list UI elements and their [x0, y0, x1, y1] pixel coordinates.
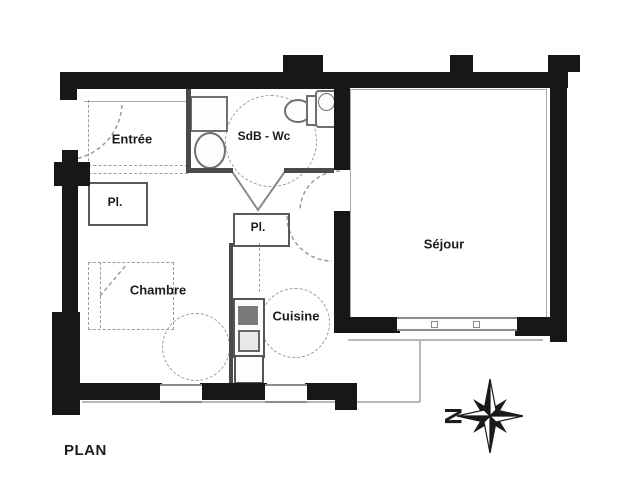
room-label-closet-2: Pl.: [251, 220, 266, 234]
entree-door-faceline: [88, 100, 89, 166]
washbasin: [194, 132, 226, 169]
chambre-window-2: [265, 384, 307, 403]
wall-sejour-bottom-right: [515, 317, 567, 336]
kitchen-sink: [234, 355, 264, 384]
room-label-closet-1: Pl.: [108, 195, 123, 209]
wall-top-right: [340, 72, 568, 88]
bed-divider: [100, 262, 101, 328]
room-label-sejour: Séjour: [424, 237, 464, 252]
pillar-top-1: [283, 55, 323, 72]
pillar-left-2: [52, 312, 80, 348]
plan-title: PLAN: [64, 442, 107, 459]
room-label-chambre: Chambre: [130, 283, 186, 298]
room-label-sdb: SdB - Wc: [238, 129, 291, 143]
sejour-door-swing-arc: [300, 171, 340, 211]
kitchen-oven: [238, 330, 260, 352]
room-label-entree: Entrée: [112, 132, 152, 147]
chambre-window-1: [160, 384, 202, 403]
cuisine-door-swing-arc: [287, 216, 332, 261]
sejour-window-tick-1: [431, 321, 438, 328]
wall-bottom-1: [64, 383, 162, 400]
sejour-inner-face: [350, 89, 547, 319]
compass-main-arms: [457, 379, 523, 453]
entree-partition-dashed-1: [78, 165, 188, 166]
room-label-cuisine: Cuisine: [273, 309, 320, 324]
wall-top-left: [60, 72, 345, 89]
wall-sejour-left-lower: [334, 211, 350, 333]
wall-left-top: [60, 72, 77, 100]
wall-bottom-foot: [335, 383, 357, 410]
wall-chambre-cuisine: [229, 243, 233, 383]
kitchen-hob: [238, 306, 258, 325]
floor-plan: Entrée SdB - Wc Pl. Pl. Chambre Cuisine …: [0, 0, 640, 488]
wall-sejour-left-upper: [334, 88, 350, 170]
wall-right: [550, 72, 567, 342]
compass-north-label: N: [439, 403, 465, 429]
entree-partition-dashed-2: [78, 173, 188, 174]
wall-left-bottom-corner: [52, 348, 80, 415]
pillar-top-2: [450, 55, 473, 72]
wall-sdb-bottom-left: [186, 168, 233, 173]
wall-sejour-bottom-left: [348, 317, 400, 333]
sejour-window: [397, 317, 517, 331]
pillar-left-1: [54, 162, 90, 186]
vanity-bowl: [318, 93, 335, 111]
shower: [190, 96, 228, 132]
cuisine-partition-dashed: [259, 243, 260, 292]
wall-bottom-2: [200, 383, 267, 400]
wall-entree-sdb: [186, 89, 191, 170]
wall-sdb-bottom-right: [284, 168, 334, 173]
pillar-top-corner: [548, 55, 580, 72]
sejour-window-tick-2: [473, 321, 480, 328]
